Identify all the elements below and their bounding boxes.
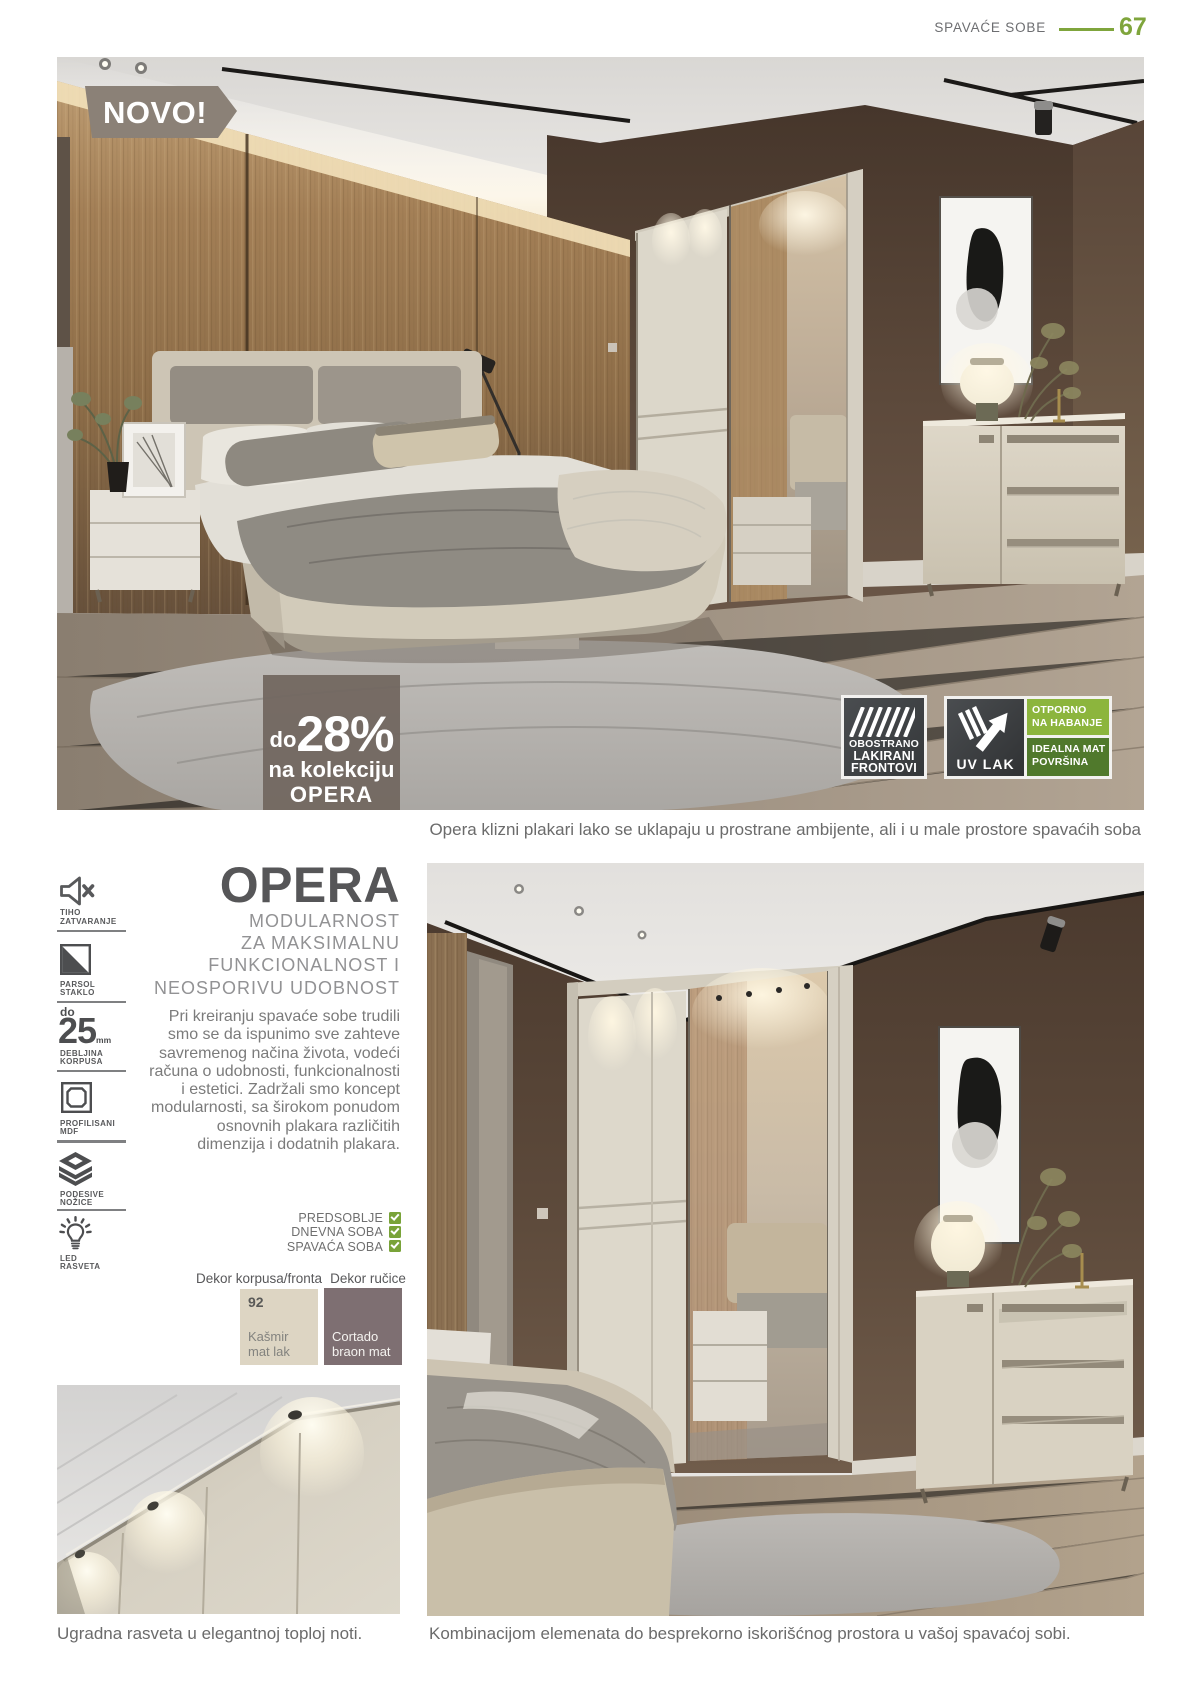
svg-text:NOVO!: NOVO!	[103, 95, 207, 130]
